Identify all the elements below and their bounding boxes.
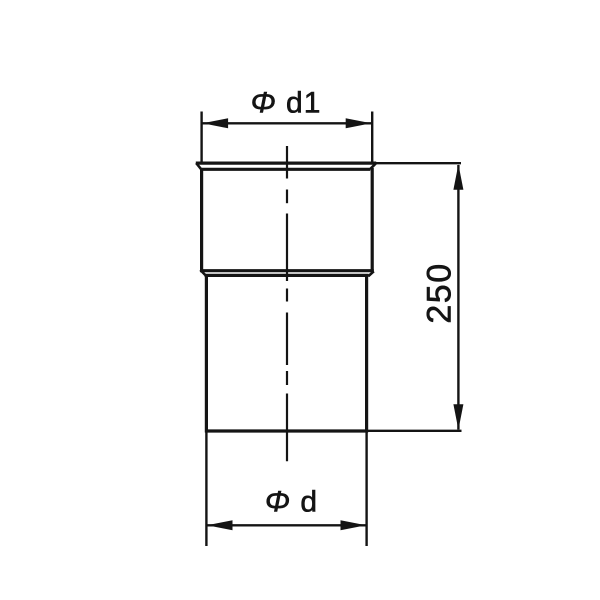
svg-text:Φ d1: Φ d1: [251, 87, 322, 120]
svg-text:250: 250: [421, 262, 459, 323]
svg-text:Φ d: Φ d: [265, 486, 318, 519]
